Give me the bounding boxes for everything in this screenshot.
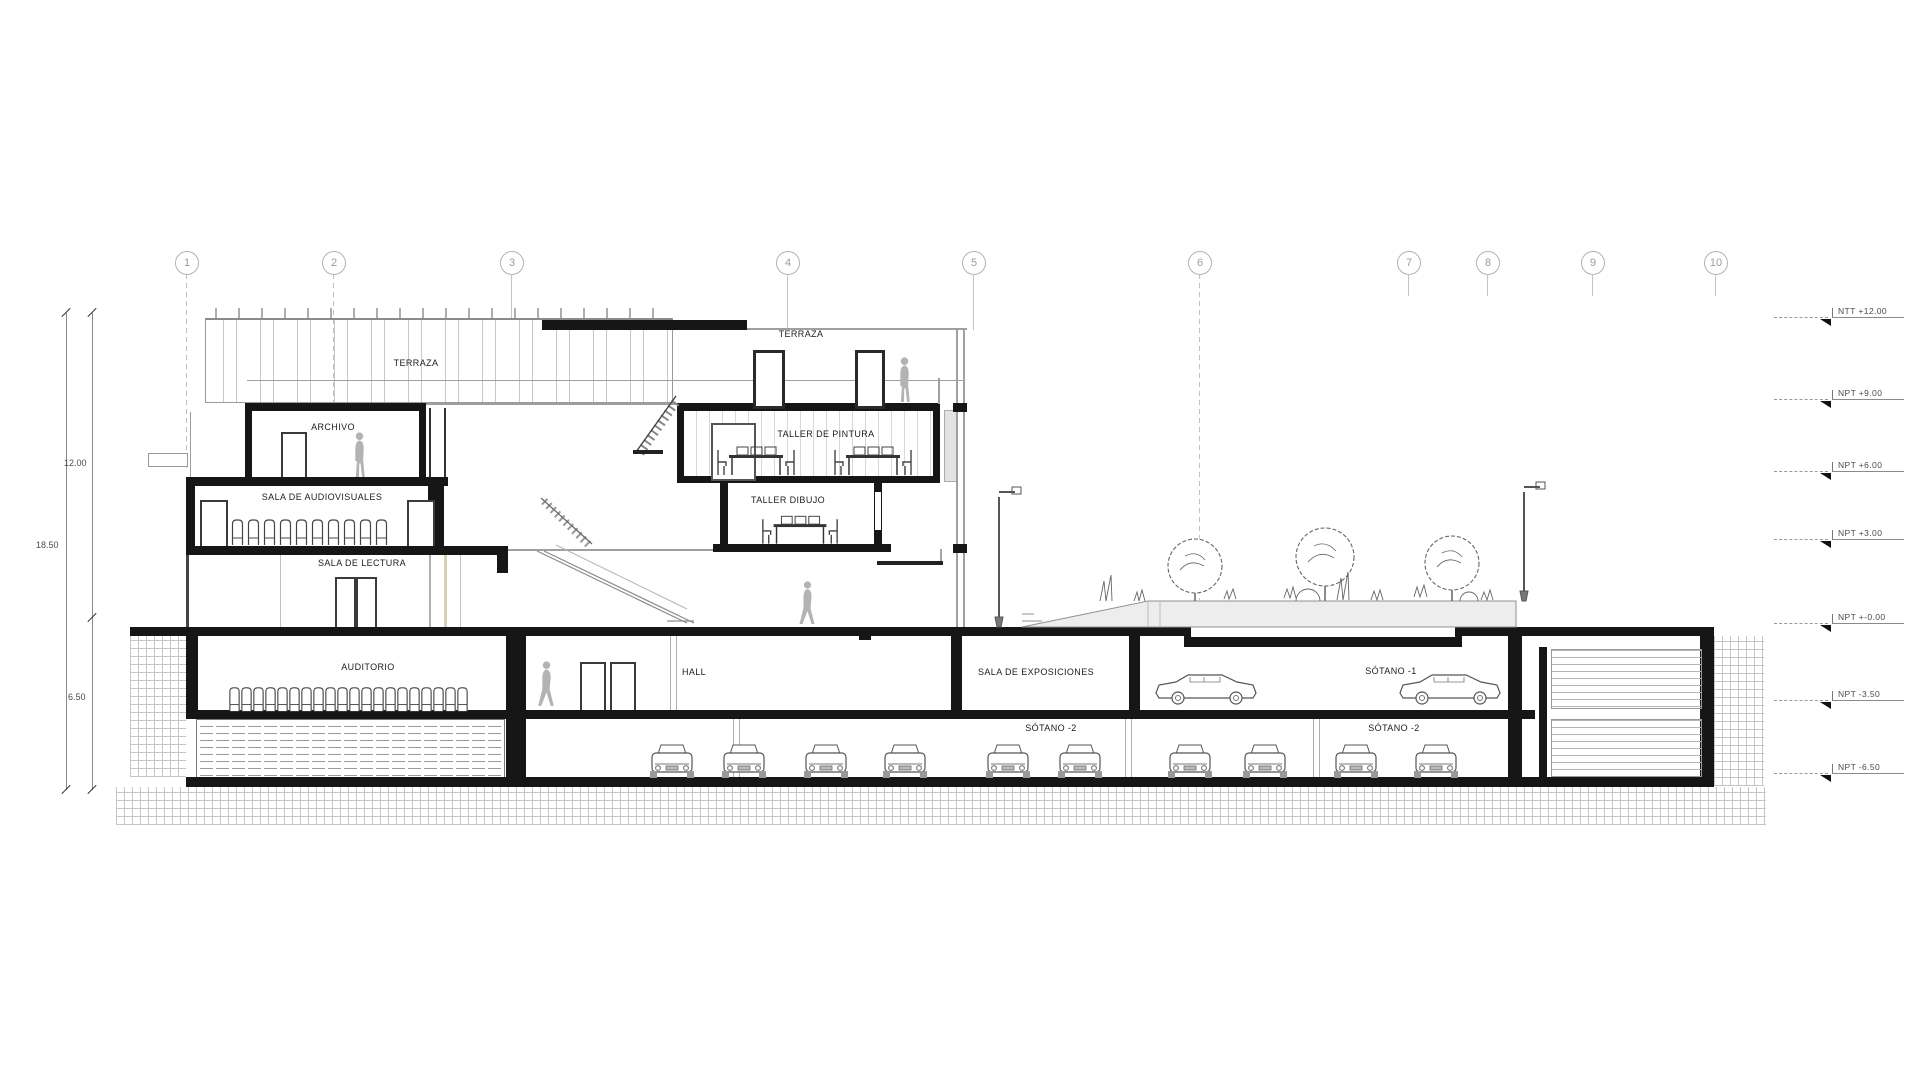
person-figure	[538, 661, 554, 705]
seat-row-audiovisuales	[233, 520, 387, 545]
room-label-sala-exposiciones: SALA DE EXPOSICIONES	[978, 667, 1094, 677]
parked-cars-side	[1156, 675, 1500, 704]
street-lamp-icon	[995, 487, 1021, 627]
seat-row-auditorio	[230, 688, 467, 711]
workshop-table	[835, 447, 911, 475]
room-label-sala-lectura: SALA DE LECTURA	[318, 558, 406, 568]
detail-overlay	[0, 0, 1920, 1080]
room-label-sotano-1: SÓTANO -1	[1365, 666, 1416, 676]
workshop-table	[763, 516, 837, 543]
tree-icon	[1296, 528, 1354, 601]
person-figure	[800, 581, 815, 624]
room-label-taller-dibujo: TALLER DIBUJO	[751, 495, 825, 505]
street-lamp-icon	[1520, 482, 1545, 601]
planter-berm	[1022, 601, 1516, 627]
room-label-terraza-left: TERRAZA	[394, 358, 439, 368]
room-label-sala-audiovisuales: SALA DE AUDIOVISUALES	[262, 492, 382, 502]
tree-icon	[1168, 539, 1222, 601]
stair-top-flight	[633, 396, 678, 454]
bench-icon	[877, 549, 943, 565]
room-label-terraza-right: TERRAZA	[779, 329, 824, 339]
room-label-hall: HALL	[682, 667, 706, 677]
person-figure	[900, 357, 909, 402]
section-drawing-canvas: 1 2 3 4 5 6 7 8 9 10 NTT +12.00 NPT +9.0…	[0, 0, 1920, 1080]
room-label-auditorio: AUDITORIO	[341, 662, 394, 672]
tree-icon	[1425, 536, 1479, 601]
room-label-archivo: ARCHIVO	[311, 422, 355, 432]
person-figure	[355, 432, 364, 477]
workshop-table	[718, 447, 794, 475]
stair-lower-flight	[537, 545, 694, 623]
parked-cars-front	[650, 745, 1458, 778]
room-label-sotano-2-right: SÓTANO -2	[1368, 723, 1419, 733]
room-label-sotano-2-left: SÓTANO -2	[1025, 723, 1076, 733]
stair-mid-flight	[541, 498, 592, 546]
room-label-taller-pintura: TALLER DE PINTURA	[777, 429, 874, 439]
